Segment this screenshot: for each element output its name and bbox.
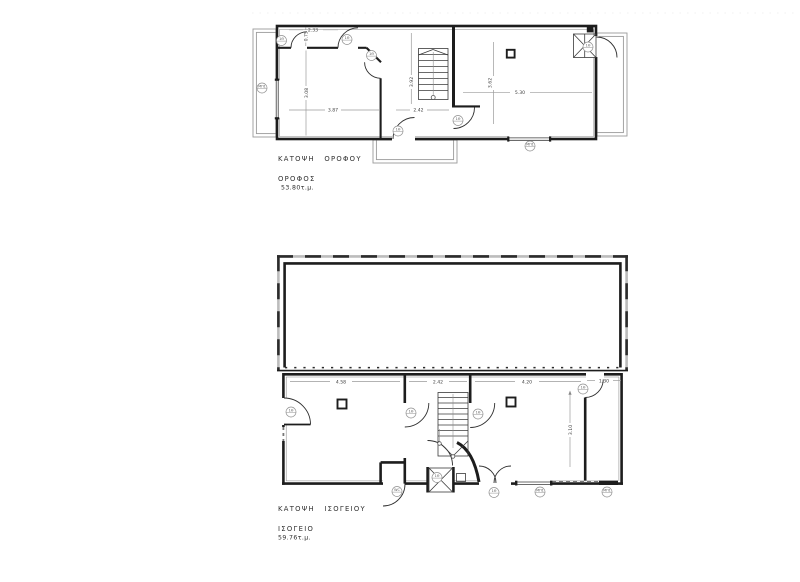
svg-text:3.08: 3.08 (304, 88, 310, 98)
door-tag: 1Θ (473, 409, 483, 419)
double-door-arc (494, 466, 511, 483)
dim-left-room-height: 3.08 (304, 51, 310, 136)
dim-arrow (568, 391, 571, 395)
door-tag: 1Θ (342, 35, 352, 45)
dim-stair-hall-width: 2.42 (396, 108, 449, 114)
upper-floor-plan: 2.33 0.75 3.08 3.87 3.92 (253, 26, 627, 192)
ground-door-arcs (284, 380, 603, 507)
wc-tag: WC (392, 487, 402, 497)
dim-entry-width: 2.33 (289, 28, 338, 34)
door-arc (597, 37, 618, 58)
svg-text:1Θ: 1Θ (369, 52, 374, 56)
dim-entry-niche-width: 1.30 (587, 378, 621, 384)
upper-wall-openings (277, 36, 596, 139)
svg-text:3.92: 3.92 (409, 77, 415, 87)
ground-area-label: 59.76τ.μ. (278, 535, 311, 542)
door-tag: 1Θ (393, 126, 403, 136)
dim-stair-hall-height: 3.92 (409, 33, 415, 104)
svg-text:3.10: 3.10 (568, 425, 574, 435)
svg-text:ΜΠ1: ΜΠ1 (536, 488, 544, 492)
step-detail (457, 474, 466, 482)
column (507, 398, 516, 407)
ground-opening-tags: 1Θ 1Θ 1Θ 1Θ 1Θ WC (286, 384, 612, 498)
svg-text:1Θ: 1Θ (289, 408, 294, 412)
svg-text:1Θ: 1Θ (581, 385, 586, 389)
svg-text:5.30: 5.30 (515, 90, 525, 96)
yard-outline (277, 255, 628, 370)
svg-text:3.87: 3.87 (328, 108, 338, 114)
svg-text:2.33: 2.33 (308, 28, 318, 34)
dim-stair-hall-width: 2.42 (409, 379, 467, 385)
ground-interior-walls (381, 374, 586, 493)
svg-text:1Θ: 1Θ (456, 117, 461, 121)
floor-plan-drawing: 2.33 0.75 3.08 3.87 3.92 (0, 0, 800, 582)
svg-text:3.62: 3.62 (488, 78, 494, 88)
dim-right-room-width: 5.30 (463, 90, 592, 96)
ground-floor-plan: 4.58 2.42 4.20 1.30 3.10 (277, 255, 628, 541)
door-tag: 1Θ (286, 407, 296, 417)
ground-plan-title: ΚΑΤΟΨΗ ΙΣΟΓΕΙΟΥ (278, 505, 366, 513)
column (507, 50, 515, 58)
door-tag: 1Θ (578, 384, 588, 394)
double-door-arc (479, 466, 496, 483)
svg-text:1Θ: 1Θ (435, 474, 440, 478)
window-tag: ΜΠ1 (535, 487, 545, 497)
window-tag: ΜΠ1 (257, 83, 267, 93)
door-tag: 1Θ (432, 473, 442, 483)
ground-floor-label: ΙΣΟΓΕΙΟ (278, 525, 314, 533)
column (338, 400, 347, 409)
door-tag: 1Θ (489, 488, 499, 498)
door-tag: 1Θ (367, 51, 377, 61)
svg-text:1Θ: 1Θ (409, 409, 414, 413)
svg-text:4.20: 4.20 (522, 379, 532, 385)
svg-text:0.75: 0.75 (303, 31, 309, 41)
door-tag: 1Θ (583, 42, 593, 52)
svg-text:ΜΠ1: ΜΠ1 (526, 142, 534, 146)
upper-staircase (419, 49, 449, 100)
svg-text:4.58: 4.58 (336, 379, 346, 385)
door-tag: 1Θ (453, 116, 463, 126)
svg-text:2.42: 2.42 (433, 379, 443, 385)
upper-area-label: 53.80τ.μ. (281, 185, 314, 192)
window-tag: ΜΠ1 (602, 487, 612, 497)
dim-right-room-height: 3.10 (568, 391, 574, 468)
shaft-symbol (574, 26, 597, 57)
svg-text:ΜΠ1: ΜΠ1 (603, 488, 611, 492)
svg-text:1Θ: 1Θ (586, 43, 591, 47)
upper-outer-walls (277, 26, 596, 139)
dim-right-room-width: 4.20 (475, 379, 581, 385)
upper-plan-title: ΚΑΤΟΨΗ ΟΡΟΦΟΥ (278, 155, 362, 163)
upper-interior-walls (278, 26, 480, 139)
dim-left-room-width: 3.87 (289, 108, 379, 114)
svg-text:WC: WC (394, 488, 400, 492)
dim-left-room-width: 4.58 (290, 379, 400, 385)
svg-text:1Θ: 1Θ (396, 127, 401, 131)
door-arc (365, 62, 381, 78)
svg-text:1Θ: 1Θ (476, 410, 481, 414)
svg-text:1.30: 1.30 (599, 378, 609, 384)
svg-text:2.42: 2.42 (413, 108, 423, 114)
window-sill (599, 481, 618, 485)
svg-text:1Θ: 1Θ (279, 37, 284, 41)
svg-text:ΜΠ1: ΜΠ1 (258, 84, 266, 88)
svg-text:1Θ: 1Θ (345, 36, 350, 40)
chimney-block (587, 26, 594, 32)
dim-right-room-height: 3.62 (488, 42, 494, 124)
upper-floor-label: ΟΡΟΦΟΣ (278, 175, 316, 183)
svg-text:1Θ: 1Θ (492, 489, 497, 493)
door-tag: 1Θ (406, 408, 416, 418)
upper-dimensions: 2.33 0.75 3.08 3.87 3.92 (289, 28, 592, 136)
window-tag: ΜΠ1 (525, 141, 535, 151)
door-tag: 1Θ (277, 36, 287, 46)
